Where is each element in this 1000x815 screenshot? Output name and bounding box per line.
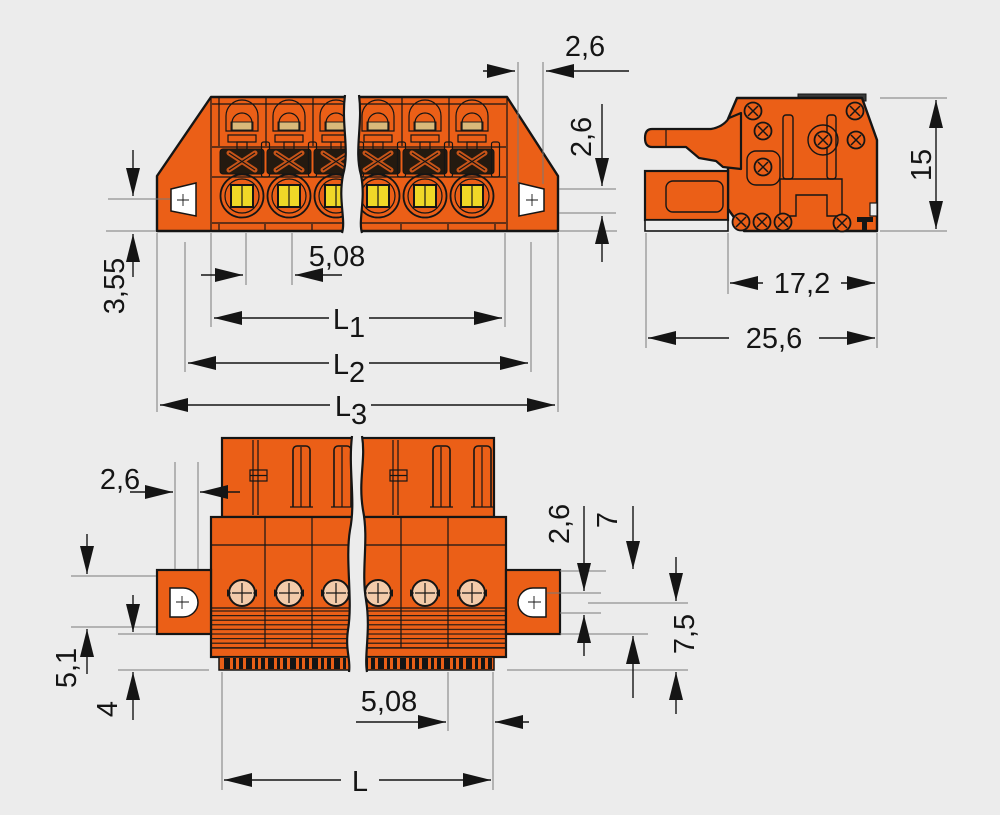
- side-view: [645, 94, 877, 232]
- dim-side-total-depth: 25,6: [746, 323, 802, 355]
- dim-bottom-hole-width: 2,6: [100, 464, 140, 496]
- dim-bottom-flange-offset: 5,1: [51, 648, 83, 688]
- front-break-line: [341, 95, 362, 233]
- dim-front-pitch: 5,08: [309, 241, 365, 273]
- dim-bottom-hole-height: 2,6: [544, 504, 576, 544]
- bottom-right-flange: [506, 570, 560, 634]
- bottom-view: [157, 436, 560, 672]
- dim-bottom-length: L: [352, 766, 368, 798]
- dim-side-total-height: 15: [906, 149, 938, 181]
- bottom-left-flange: [157, 570, 211, 634]
- connector-dimension-drawing: 2,6 2,6 3,55 5,08 L1 L2 L3: [0, 0, 1000, 815]
- front-right-flange-hole: [519, 183, 544, 216]
- dim-bottom-foot-height: 4: [92, 701, 124, 717]
- dim-front-l2: L2: [333, 349, 365, 389]
- dim-side-housing-depth: 17,2: [774, 268, 830, 300]
- dim-bottom-pitch: 5,08: [361, 686, 417, 718]
- dim-front-l3: L3: [335, 391, 367, 431]
- side-bottom-strip: [645, 220, 728, 231]
- dim-front-hole-width: 2,6: [565, 31, 605, 63]
- dim-bottom-flange-height: 7: [592, 512, 624, 528]
- dim-front-l1: L1: [333, 304, 365, 344]
- front-view: [157, 95, 558, 233]
- front-left-flange-hole: [171, 183, 196, 216]
- dim-front-hole-height: 2,6: [566, 117, 598, 157]
- dim-front-flange-offset: 3,55: [99, 258, 131, 314]
- dim-bottom-strain-relief-height: 7,5: [669, 614, 701, 654]
- side-latch: [645, 113, 741, 169]
